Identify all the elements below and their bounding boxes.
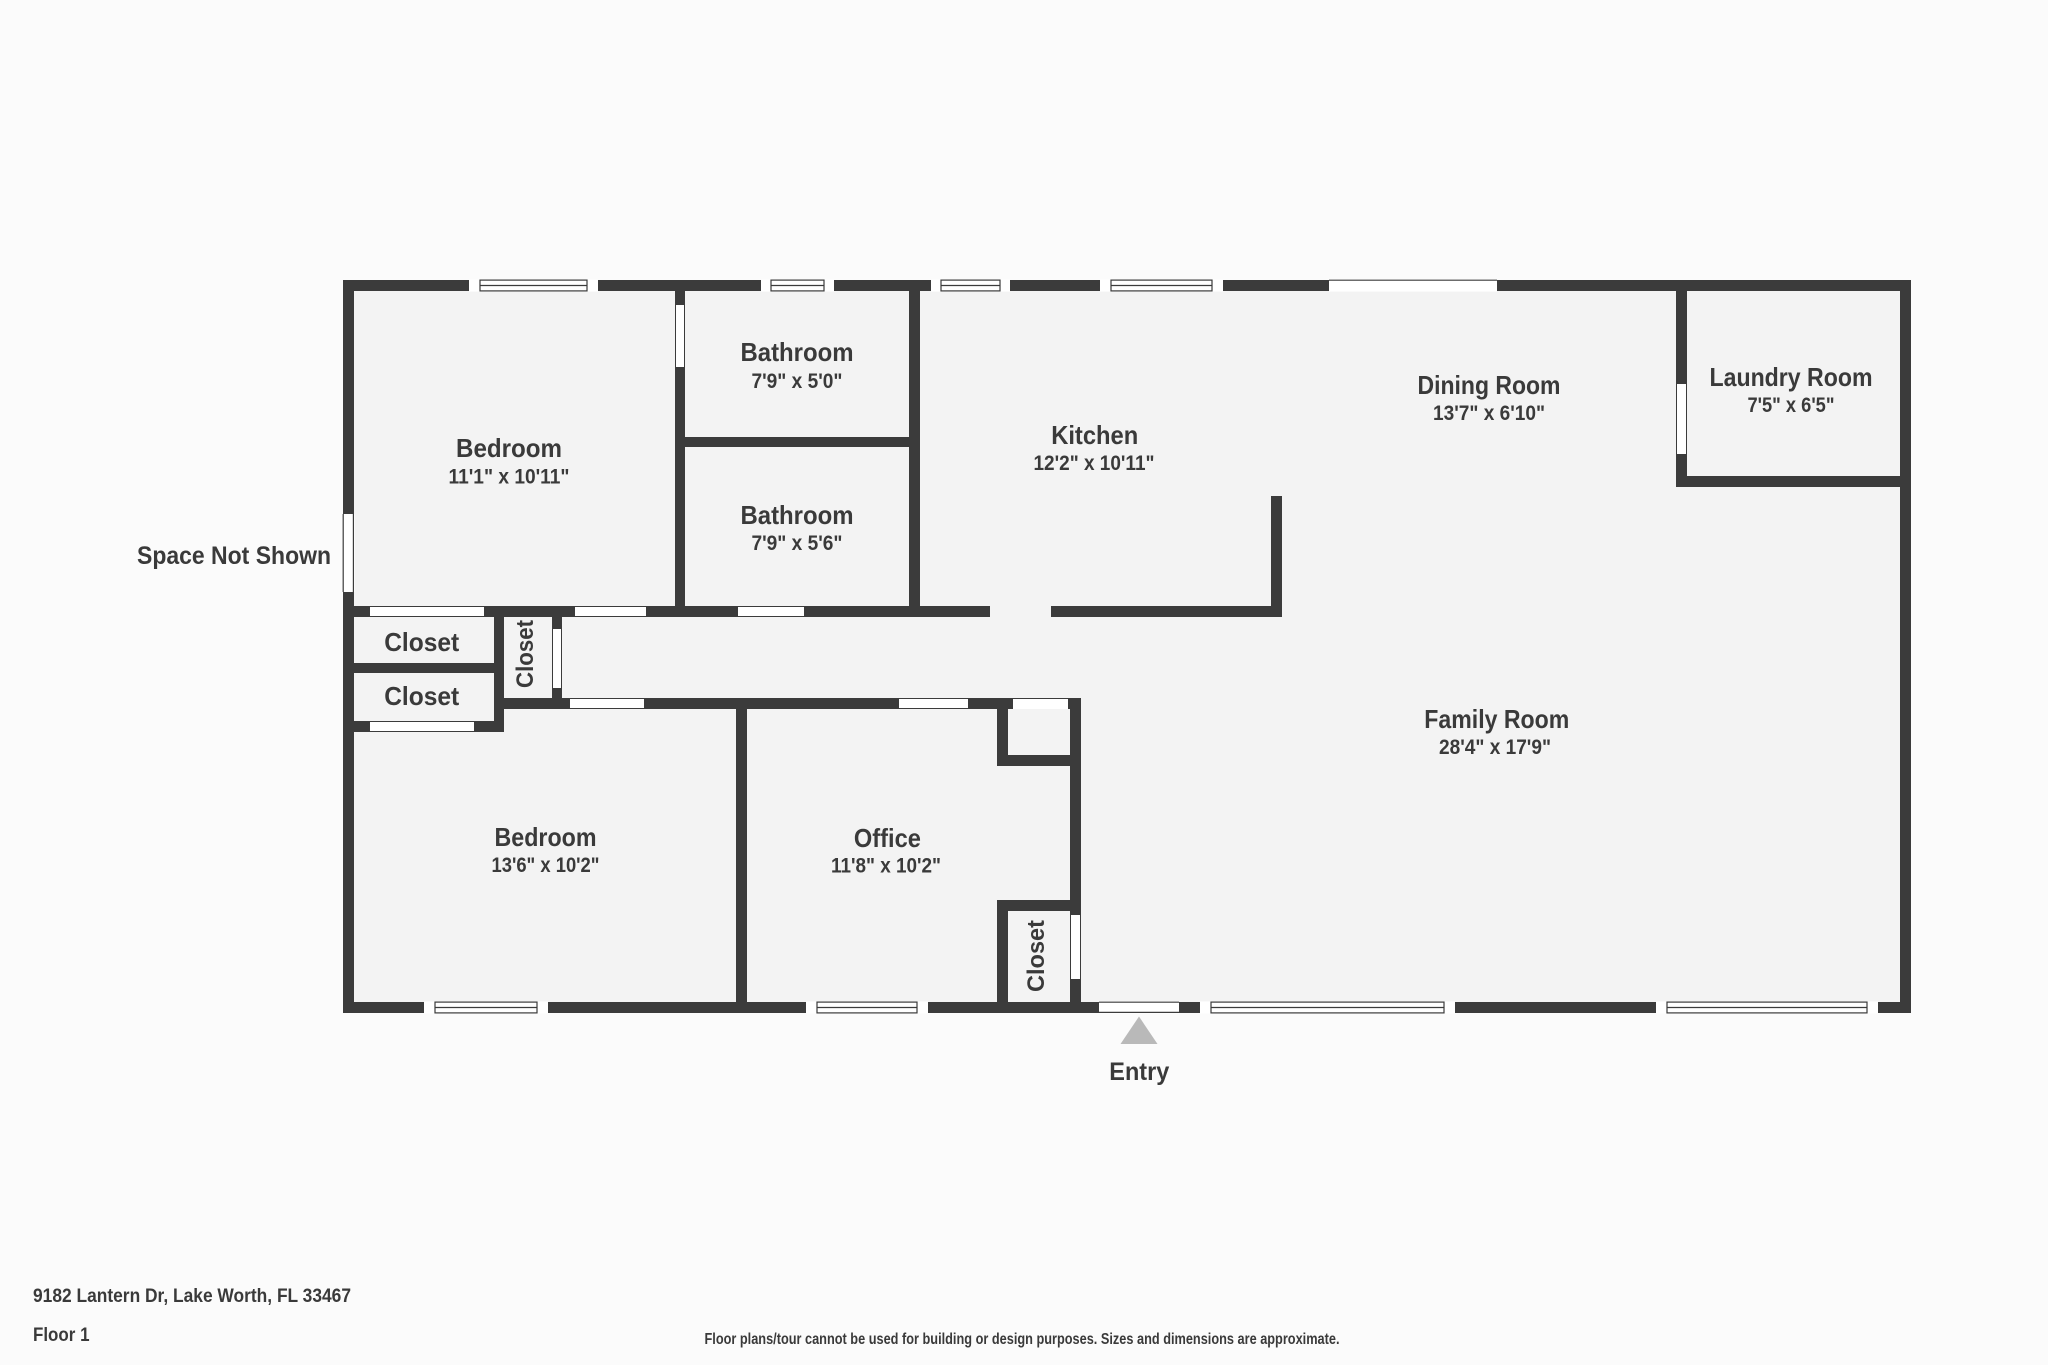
svg-text:Bathroom: Bathroom bbox=[741, 337, 854, 367]
svg-text:9182 Lantern Dr, Lake Worth, F: 9182 Lantern Dr, Lake Worth, FL 33467 bbox=[33, 1286, 351, 1307]
svg-text:Dining Room: Dining Room bbox=[1418, 370, 1561, 400]
svg-text:11'1" x 10'11": 11'1" x 10'11" bbox=[449, 465, 570, 489]
svg-text:Laundry Room: Laundry Room bbox=[1710, 362, 1873, 392]
svg-text:7'9" x 5'0": 7'9" x 5'0" bbox=[752, 369, 843, 393]
svg-text:Closet: Closet bbox=[384, 681, 459, 711]
svg-text:13'6" x 10'2": 13'6" x 10'2" bbox=[492, 853, 600, 877]
svg-text:12'2" x 10'11": 12'2" x 10'11" bbox=[1034, 451, 1155, 475]
svg-text:Bedroom: Bedroom bbox=[495, 822, 597, 852]
svg-text:Family Room: Family Room bbox=[1424, 704, 1569, 734]
svg-text:13'7" x 6'10": 13'7" x 6'10" bbox=[1433, 401, 1545, 425]
svg-text:Office: Office bbox=[854, 823, 921, 853]
svg-text:Space Not Shown: Space Not Shown bbox=[137, 542, 331, 570]
svg-text:Kitchen: Kitchen bbox=[1051, 420, 1138, 450]
svg-text:Bathroom: Bathroom bbox=[741, 500, 854, 530]
svg-text:Closet: Closet bbox=[384, 627, 459, 657]
svg-text:Bedroom: Bedroom bbox=[456, 433, 562, 463]
svg-text:7'9" x 5'6": 7'9" x 5'6" bbox=[752, 531, 843, 555]
svg-text:Floor 1: Floor 1 bbox=[33, 1325, 90, 1346]
svg-text:Closet: Closet bbox=[1023, 920, 1050, 992]
svg-text:11'8" x 10'2": 11'8" x 10'2" bbox=[831, 854, 941, 878]
svg-text:Closet: Closet bbox=[512, 620, 539, 688]
svg-text:Floor plans/tour cannot be use: Floor plans/tour cannot be used for buil… bbox=[705, 1331, 1340, 1348]
svg-text:7'5" x 6'5": 7'5" x 6'5" bbox=[1748, 393, 1835, 417]
svg-text:28'4" x 17'9": 28'4" x 17'9" bbox=[1439, 735, 1551, 759]
svg-text:Entry: Entry bbox=[1109, 1058, 1169, 1086]
